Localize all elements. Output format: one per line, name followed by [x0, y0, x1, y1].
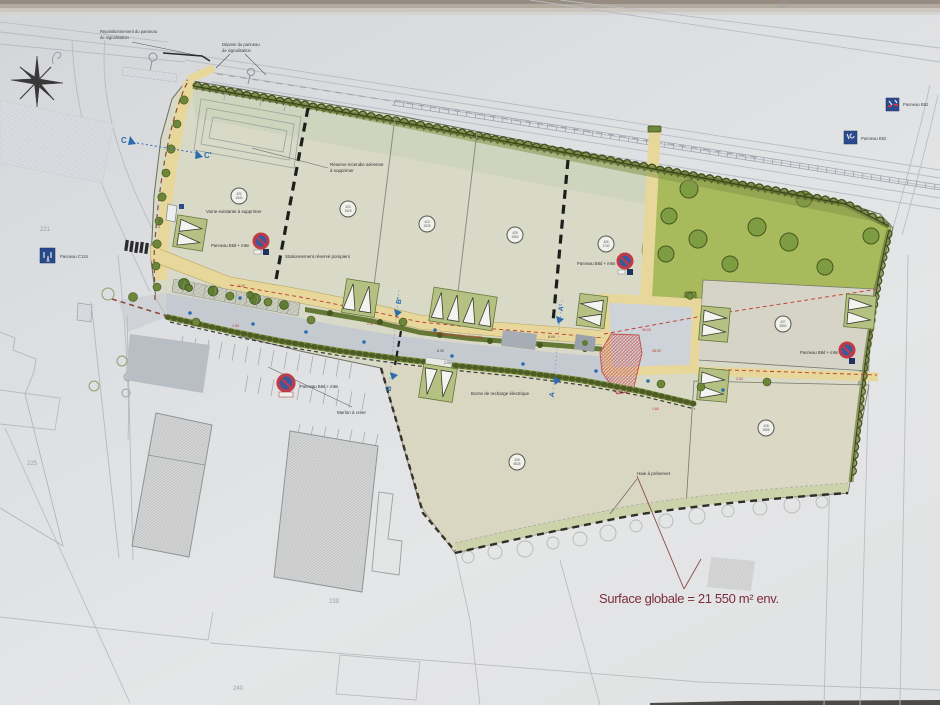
svg-text:1740: 1740 [602, 244, 609, 248]
svg-text:Repositionnement du panneau: Repositionnement du panneau [100, 29, 158, 34]
svg-text:C': C' [204, 151, 212, 160]
svg-text:239: 239 [329, 599, 340, 605]
svg-text:1540: 1540 [235, 196, 242, 200]
svg-text:à supprimer: à supprimer [330, 168, 354, 173]
svg-text:Panneau B6d + m6n: Panneau B6d + m6n [577, 261, 616, 266]
svg-text:2.00: 2.00 [736, 377, 743, 381]
svg-text:3.00: 3.00 [238, 284, 245, 288]
svg-text:30.00: 30.00 [642, 328, 651, 332]
svg-text:8.00: 8.00 [548, 335, 555, 339]
svg-text:Panneau B6d + m6n: Panneau B6d + m6n [211, 243, 250, 248]
svg-text:Panneau B6d + m6n: Panneau B6d + m6n [800, 350, 839, 355]
svg-text:Dépose du panneau: Dépose du panneau [222, 42, 260, 47]
svg-text:2 m: 2 m [367, 322, 373, 326]
svg-text:de signalisation: de signalisation [222, 48, 252, 53]
svg-text:36.00: 36.00 [652, 349, 661, 353]
svg-text:Stationnement réservé pompiers: Stationnement réservé pompiers [285, 254, 351, 259]
svg-text:C: C [121, 136, 127, 145]
svg-text:Haie à préserver: Haie à préserver [637, 471, 671, 476]
svg-text:240: 240 [233, 686, 244, 692]
svg-text:6525: 6525 [513, 462, 520, 466]
svg-text:Panneau B52: Panneau B52 [903, 102, 929, 107]
svg-text:2655: 2655 [762, 428, 769, 432]
svg-text:Panneau C134: Panneau C134 [60, 254, 89, 259]
svg-text:237: 237 [778, 4, 789, 10]
svg-text:Réserve incendie aérienne: Réserve incendie aérienne [330, 162, 384, 167]
svg-text:1525: 1525 [344, 209, 351, 213]
svg-text:1525: 1525 [423, 224, 430, 228]
svg-text:221: 221 [40, 227, 51, 233]
svg-text:2650: 2650 [779, 324, 786, 328]
svg-text:1.50: 1.50 [232, 324, 239, 328]
svg-text:1.60: 1.60 [652, 407, 659, 411]
svg-text:6.00: 6.00 [437, 349, 444, 353]
svg-text:1560: 1560 [511, 235, 518, 239]
svg-text:de signalisation: de signalisation [100, 35, 130, 40]
svg-text:2.00: 2.00 [444, 361, 451, 365]
svg-text:Merlon à créer: Merlon à créer [337, 410, 367, 415]
svg-text:Voirie existante à supprimer: Voirie existante à supprimer [206, 209, 262, 214]
svg-text:225: 225 [27, 461, 38, 467]
svg-text:Borne de recharge électrique: Borne de recharge électrique [471, 391, 530, 396]
svg-text:Surface globale = 21 550 m² en: Surface globale = 21 550 m² env. [599, 591, 779, 606]
svg-text:Panneau B52: Panneau B52 [861, 136, 887, 141]
